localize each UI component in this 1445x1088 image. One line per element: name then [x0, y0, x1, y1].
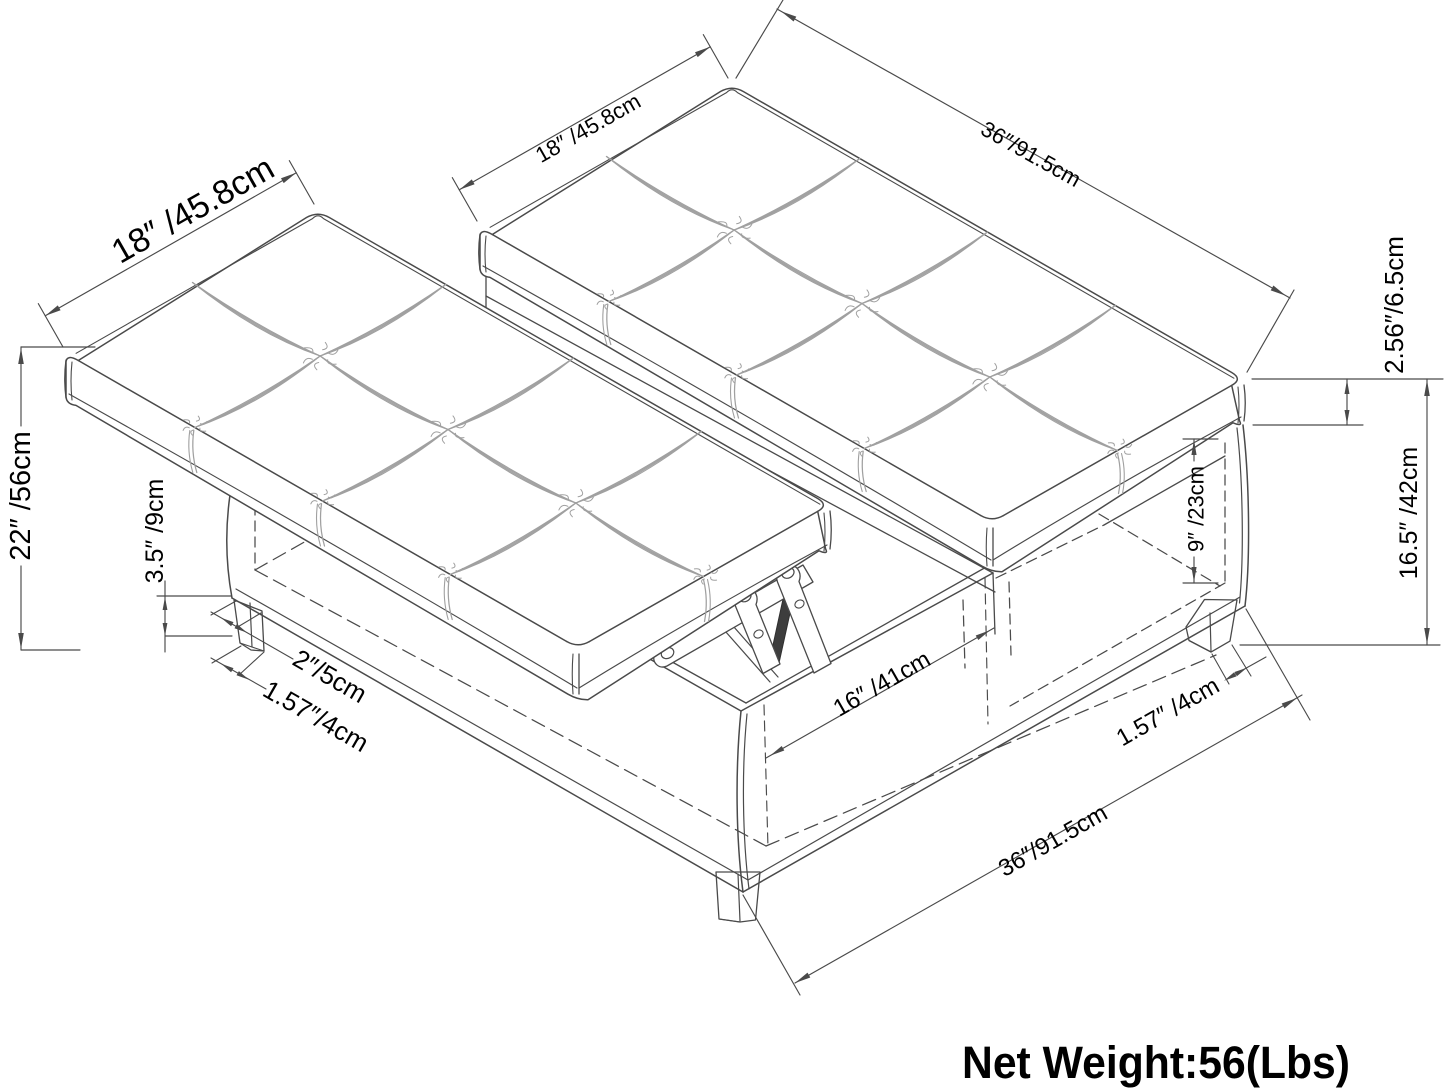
svg-text:22″ /56cm: 22″ /56cm [5, 431, 37, 561]
svg-text:3.5″ /9cm: 3.5″ /9cm [141, 479, 169, 584]
svg-text:2.56″/6.5cm: 2.56″/6.5cm [1379, 236, 1409, 374]
svg-text:9″ /23cm: 9″ /23cm [1184, 466, 1209, 552]
svg-text:Net Weight:56(Lbs): Net Weight:56(Lbs) [962, 1037, 1350, 1088]
svg-text:16.5″ /42cm: 16.5″ /42cm [1395, 447, 1423, 580]
